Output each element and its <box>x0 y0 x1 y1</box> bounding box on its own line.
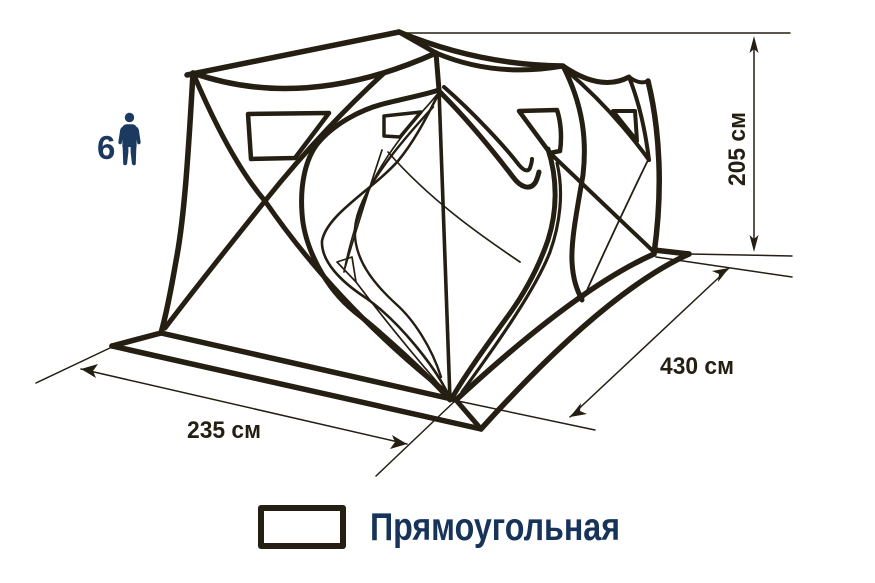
svg-text:430 см: 430 см <box>660 353 734 380</box>
svg-text:235 см: 235 см <box>187 417 261 444</box>
svg-text:Прямоугольная: Прямоугольная <box>370 506 620 549</box>
svg-text:6: 6 <box>97 129 115 166</box>
svg-text:205 см: 205 см <box>724 112 751 186</box>
